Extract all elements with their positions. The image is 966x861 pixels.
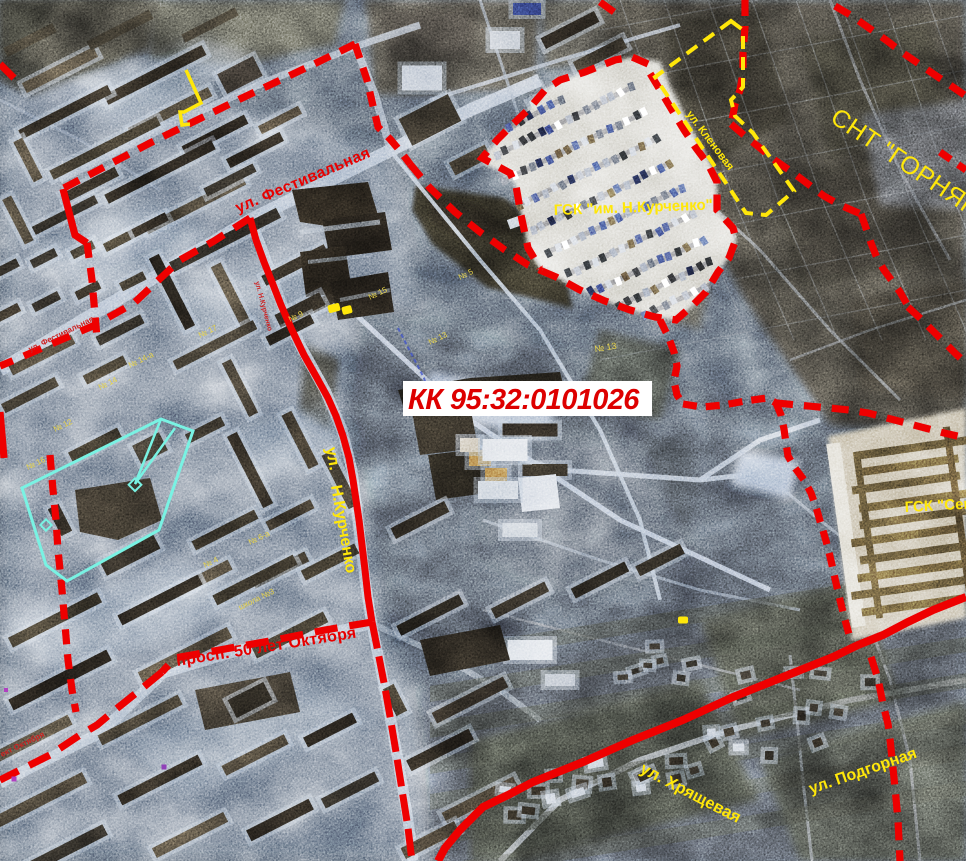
svg-text:ул. Фестивальная: ул. Фестивальная [27, 314, 96, 354]
svg-text:№ 14-а: № 14-а [127, 350, 156, 370]
svg-text:№ 12: № 12 [52, 417, 74, 434]
svg-text:№ 15: № 15 [367, 285, 389, 302]
svg-text:№ 16: № 16 [25, 455, 47, 472]
svg-text:ул.: ул. [322, 446, 343, 472]
svg-text:№ 17: № 17 [197, 323, 219, 340]
svg-text:просп. 50 лет Октября: просп. 50 лет Октября [175, 625, 358, 670]
svg-text:ул. Н.Курченко: ул. Н.Курченко [253, 281, 273, 332]
svg-text:ГСК "Сев: ГСК "Сев [904, 495, 966, 516]
svg-text:№ 4: № 4 [202, 555, 220, 570]
svg-text:№ 9: № 9 [287, 309, 305, 324]
svg-text:№ 6-а: № 6-а [247, 529, 272, 547]
svg-text:КК 95:32:0101026: КК 95:32:0101026 [408, 384, 640, 416]
svg-text:ул. Фестивальная: ул. Фестивальная [233, 144, 373, 216]
svg-text:№ 5: № 5 [457, 267, 475, 282]
svg-text:ул. Кленовая: ул. Кленовая [684, 109, 736, 173]
svg-text:школа №3: школа №3 [237, 587, 276, 612]
svg-text:ГСК "им. Н.Курченко": ГСК "им. Н.Курченко" [554, 196, 714, 219]
svg-text:ул. Хрящевая: ул. Хрящевая [637, 760, 744, 827]
svg-text:№ 13: № 13 [427, 330, 449, 347]
svg-text:№ 13: № 13 [594, 341, 617, 354]
svg-text:ект Октября: ект Октября [0, 730, 46, 759]
svg-text:ул. Подгорная: ул. Подгорная [807, 745, 919, 798]
svg-text:№ 14: № 14 [97, 375, 119, 392]
